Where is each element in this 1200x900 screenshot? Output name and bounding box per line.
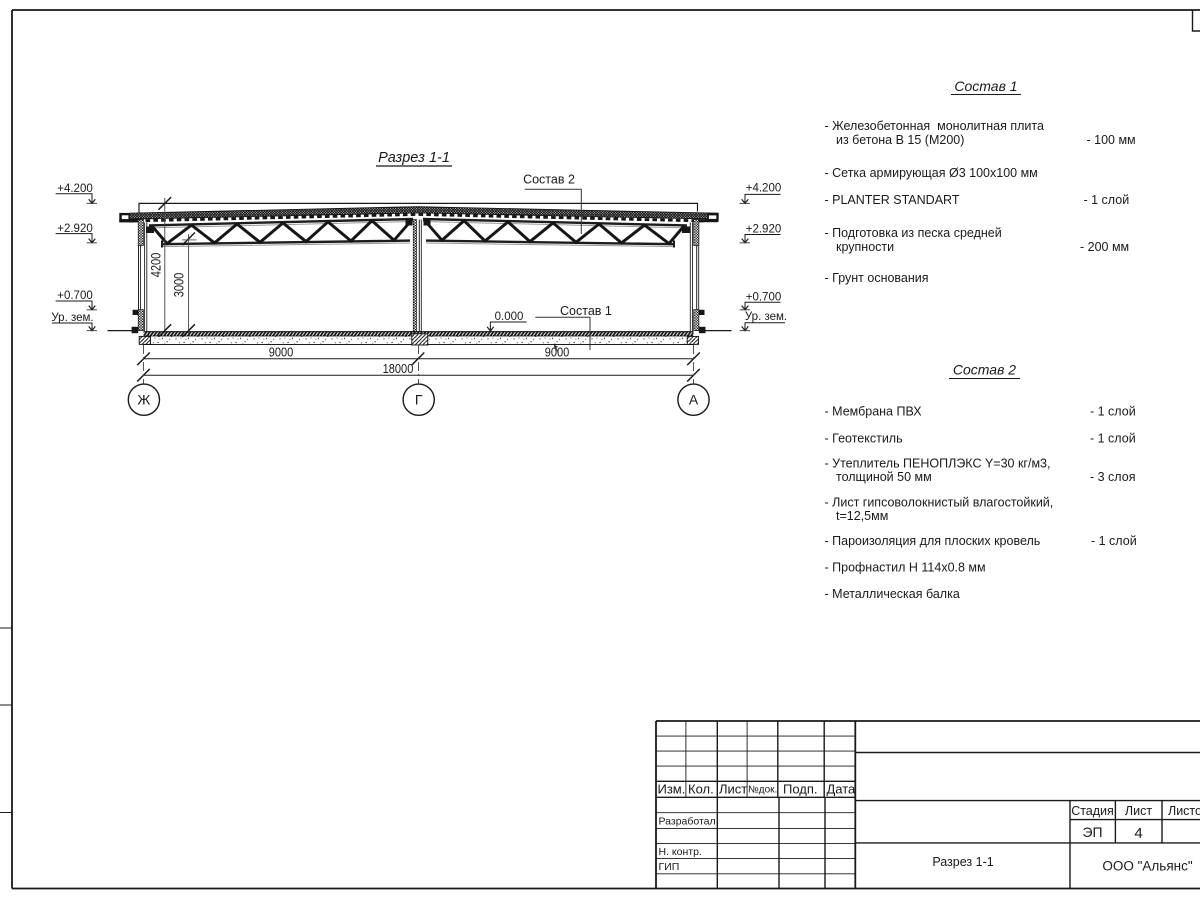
svg-text:Состав 2: Состав 2 xyxy=(953,362,1016,378)
svg-text:Разрез 1-1: Разрез 1-1 xyxy=(378,150,450,166)
svg-text:Разрез 1-1: Разрез 1-1 xyxy=(932,855,993,869)
svg-text:ЭП: ЭП xyxy=(1082,824,1102,840)
svg-text:- Профнастил Н 114х0.8 мм: - Профнастил Н 114х0.8 мм xyxy=(825,560,986,574)
svg-text:- Лист гипсоволокнистый влагос: - Лист гипсоволокнистый влагостойкий, xyxy=(825,495,1054,509)
svg-text:толщиной 50 мм: толщиной 50 мм xyxy=(836,470,932,484)
svg-text:Состав 1: Состав 1 xyxy=(954,78,1017,94)
svg-text:+2.920: +2.920 xyxy=(746,223,782,235)
svg-text:- Мембрана ПВХ: - Мембрана ПВХ xyxy=(825,404,923,418)
svg-text:Лист: Лист xyxy=(719,782,747,797)
svg-text:+4.200: +4.200 xyxy=(57,183,93,195)
svg-text:18000: 18000 xyxy=(383,361,414,376)
svg-text:+0.700: +0.700 xyxy=(57,290,93,302)
svg-text:Изм.: Изм. xyxy=(658,782,686,797)
svg-text:Состав 1: Состав 1 xyxy=(560,304,612,318)
svg-text:4: 4 xyxy=(1134,825,1142,842)
svg-text:- Утеплитель ПЕНОПЛЭКС Y=30 кг: - Утеплитель ПЕНОПЛЭКС Y=30 кг/м3, xyxy=(825,456,1051,470)
svg-text:Н. контр.: Н. контр. xyxy=(659,846,702,858)
svg-text:Ж: Ж xyxy=(137,392,150,408)
svg-text:Подп.: Подп. xyxy=(783,782,818,797)
svg-text:Дата: Дата xyxy=(827,782,857,797)
svg-text:0.000: 0.000 xyxy=(495,311,524,323)
svg-text:t=12,5мм: t=12,5мм xyxy=(836,509,888,523)
svg-text:№док.: №док. xyxy=(748,785,777,796)
svg-text:+0.700: +0.700 xyxy=(746,291,782,303)
svg-text:Листов: Листов xyxy=(1168,804,1200,818)
svg-text:- 1 слой: - 1 слой xyxy=(1090,431,1136,445)
svg-text:- 1 слой: - 1 слой xyxy=(1091,534,1137,548)
svg-text:- 200 мм: - 200 мм xyxy=(1080,240,1129,254)
svg-text:из бетона В 15 (М200): из бетона В 15 (М200) xyxy=(836,133,964,147)
svg-text:Стадия: Стадия xyxy=(1071,804,1114,818)
svg-text:4200: 4200 xyxy=(148,253,163,278)
svg-text:- Металлическая балка: - Металлическая балка xyxy=(825,587,960,601)
svg-text:- Геотекстиль: - Геотекстиль xyxy=(825,431,903,445)
svg-text:- Подготовка из песка средней: - Подготовка из песка средней xyxy=(825,226,1002,240)
svg-text:9000: 9000 xyxy=(269,344,294,359)
svg-text:3000: 3000 xyxy=(171,273,186,298)
svg-text:Лист: Лист xyxy=(1125,804,1152,818)
svg-text:- PLANTER STANDART: - PLANTER STANDART xyxy=(825,193,960,207)
svg-text:Кол.: Кол. xyxy=(688,782,714,797)
svg-text:- Пароизоляция для плоских кро: - Пароизоляция для плоских кровель xyxy=(825,534,1041,548)
svg-text:крупности: крупности xyxy=(836,240,894,254)
svg-text:Состав 2: Состав 2 xyxy=(523,172,575,186)
svg-text:Разработал: Разработал xyxy=(659,816,716,828)
svg-text:ООО "Альянс": ООО "Альянс" xyxy=(1102,859,1192,874)
svg-text:+2.920: +2.920 xyxy=(57,223,93,235)
svg-text:+4.200: +4.200 xyxy=(746,183,782,195)
svg-text:- Сетка армирующая Ø3 100х100: - Сетка армирующая Ø3 100х100 мм xyxy=(825,166,1038,180)
svg-text:Г: Г xyxy=(415,392,423,408)
svg-text:- 3 слоя: - 3 слоя xyxy=(1090,470,1135,484)
svg-text:- 1 слой: - 1 слой xyxy=(1090,404,1136,418)
svg-text:А: А xyxy=(689,392,699,408)
svg-text:- Железобетонная монолитная п: - Железобетонная монолитная плита xyxy=(825,119,1044,133)
svg-text:Ур. зем.: Ур. зем. xyxy=(51,312,93,324)
svg-text:ГИП: ГИП xyxy=(659,861,680,873)
svg-text:- 1 слой: - 1 слой xyxy=(1084,193,1130,207)
svg-text:- Грунт основания: - Грунт основания xyxy=(825,271,929,285)
svg-text:Ур. зем.: Ур. зем. xyxy=(745,311,787,323)
svg-text:- 100 мм: - 100 мм xyxy=(1087,133,1136,147)
